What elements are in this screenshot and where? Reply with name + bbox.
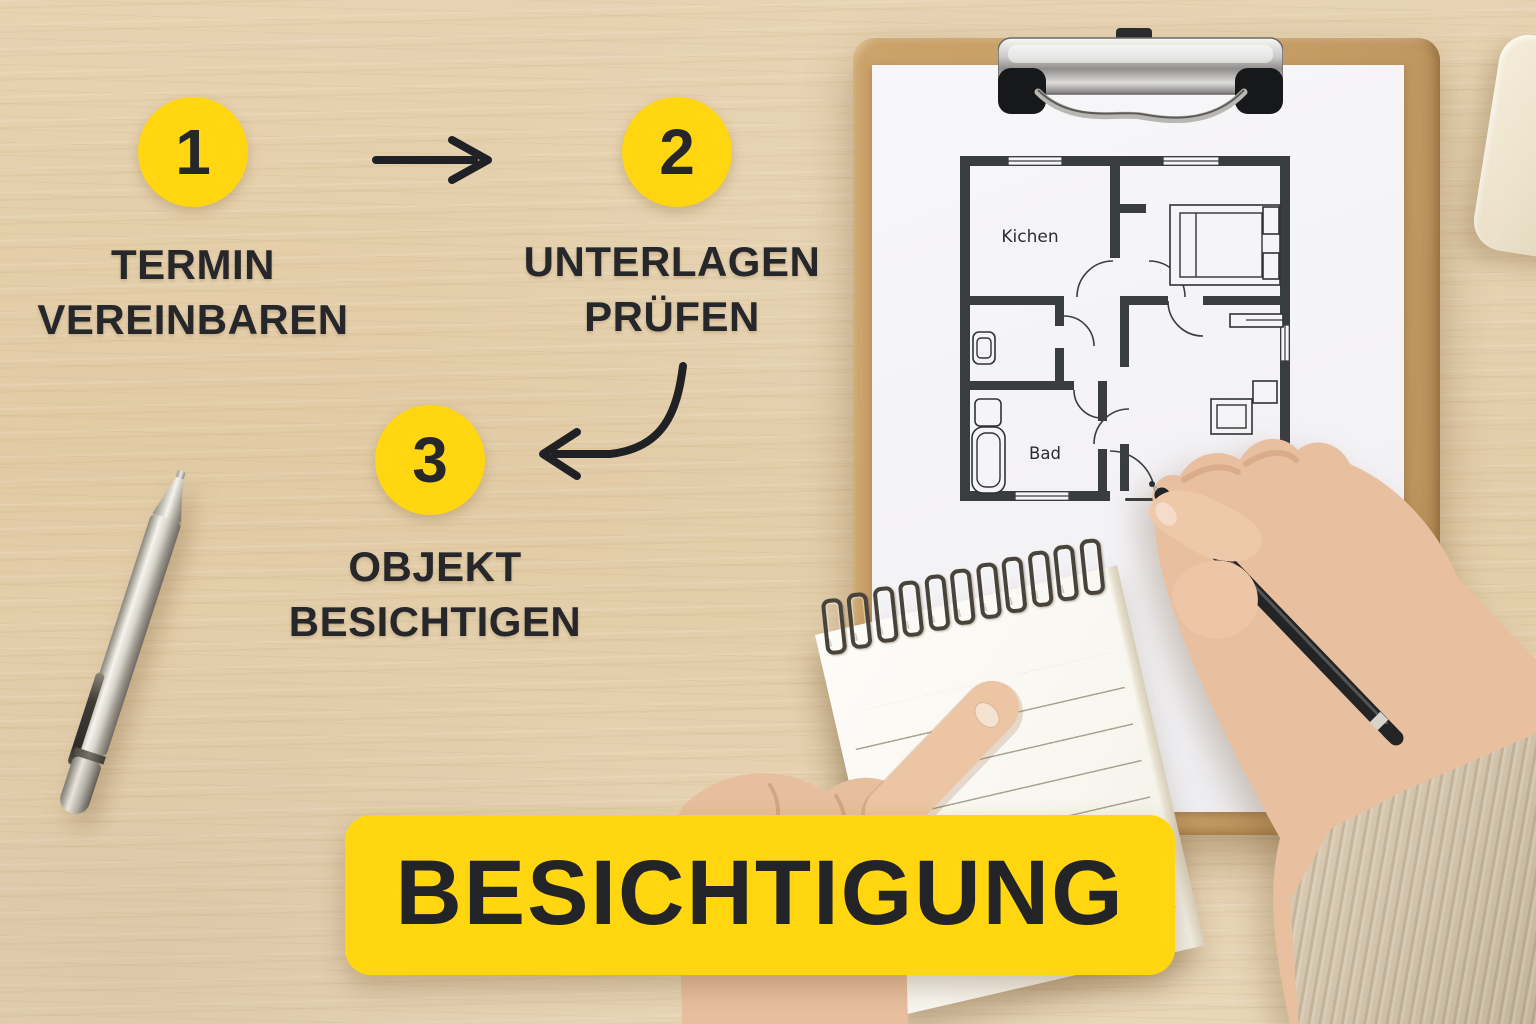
kitchen-room-label: Kichen <box>1001 227 1058 247</box>
step-circle-1: 1 <box>138 97 248 207</box>
step-2-line-2: PRÜFEN <box>492 289 852 344</box>
bathroom-room-label: Bad <box>1029 444 1061 463</box>
step-number-3: 3 <box>412 423 448 497</box>
step-3-line-2: BESICHTIGEN <box>255 594 615 649</box>
step-label-2: UNTERLAGEN PRÜFEN <box>492 234 852 344</box>
clipboard-clip <box>998 28 1283 136</box>
step-label-3: OBJEKT BESICHTIGEN <box>255 539 615 649</box>
banner-label: BESICHTIGUNG <box>395 847 1124 939</box>
desk-scene: Kichen Bad <box>0 0 1536 1024</box>
step-2-line-1: UNTERLAGEN <box>492 234 852 289</box>
curved-arrow-left-icon <box>515 358 705 483</box>
besichtigung-banner: BESICHTIGUNG <box>345 815 1175 975</box>
step-circle-3: 3 <box>375 405 485 515</box>
step-number-1: 1 <box>175 115 211 189</box>
step-1-line-1: TERMIN <box>13 237 373 292</box>
arrow-right-icon <box>370 130 510 190</box>
step-number-2: 2 <box>659 115 695 189</box>
step-label-1: TERMIN VEREINBAREN <box>13 237 373 347</box>
step-3-line-1: OBJEKT <box>255 539 615 594</box>
step-1-line-2: VEREINBAREN <box>13 292 373 347</box>
step-circle-2: 2 <box>622 97 732 207</box>
